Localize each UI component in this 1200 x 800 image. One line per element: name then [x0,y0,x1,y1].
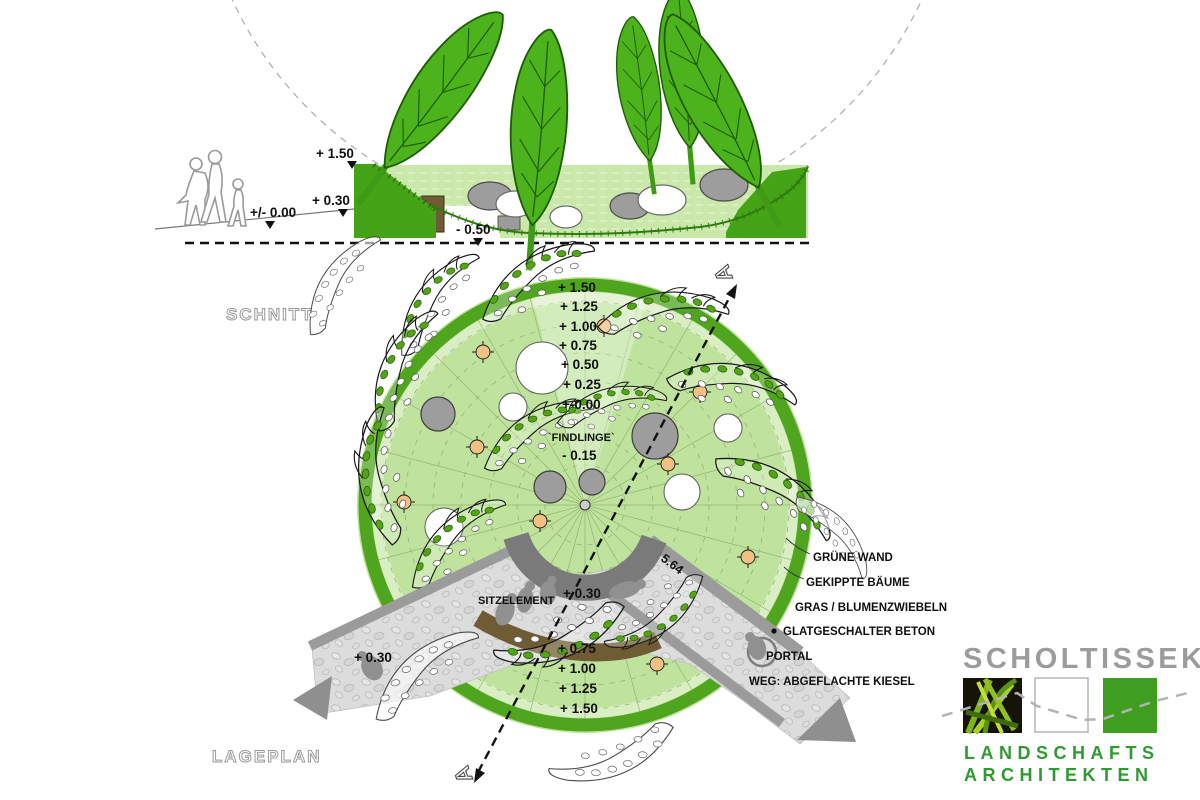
callout-portal: PORTAL [766,651,812,663]
findlinge-label: `FINDLINGE` [548,432,615,444]
landscape-architecture-drawing: + 1.50 + 0.30 +/- 0.00 - 0.50 SCHNITT [0,0,1200,800]
section-drawing: + 1.50 + 0.30 +/- 0.00 - 0.50 SCHNITT [155,0,957,324]
logo-firm-name: SCHOLTISSEK [963,643,1200,675]
elev-top-125: + 1.25 [560,299,598,314]
plan-title: LAGEPLAN [212,747,322,766]
path-level-center: + 0.30 [563,586,601,601]
level-030-label: + 0.30 [312,193,350,208]
elev-top-025: + 0.25 [563,377,601,392]
level-150-label: + 1.50 [316,146,354,161]
callout-gruene-wand: GRÜNE WAND [813,551,893,564]
elev-top-000: +-0.00 [562,397,601,412]
elev-top-100: + 1.00 [559,319,597,334]
findlinge-level: - 0.15 [562,448,597,463]
logo-grass-square [963,678,1022,733]
logo-block: SCHOLTISSEK LANDSCHAFTS ARCHITEKTEN [942,643,1200,785]
path-level-left: + 0.30 [354,650,392,665]
section-title: SCHNITT [226,305,314,324]
section-marker-top: A [709,262,738,286]
walking-people [178,151,246,227]
seat-label: SITZELEMENT [478,595,555,607]
elev-bot-100: + 1.00 [558,661,596,676]
section-marker-bottom: A [449,763,478,787]
elev-bot-075: + 0.75 [558,641,596,656]
logo-sub2: ARCHITEKTEN [964,765,1154,785]
elev-top-150: + 1.50 [558,280,596,295]
elev-top-050: + 0.50 [561,357,599,372]
circle-center-point [580,500,590,510]
portal-triangle-left [293,676,332,720]
elev-bot-150: + 1.50 [560,701,598,716]
elev-bot-125: + 1.25 [559,681,597,696]
callout-gras-blumenzwiebeln: GRAS / BLUMENZWIEBELN [795,602,947,614]
site-plan: A A + 1.50 + 1.25 + 1.00 + 0.75 + 0.50 +… [212,232,947,789]
logo-green-square [1103,678,1157,733]
callout-gekippte-baeume: GEKIPPTE BÄUME [806,576,910,589]
logo-sub1: LANDSCHAFTS [964,743,1160,763]
callout-weg-kiesel: WEG: ABGEFLACHTE KIESEL [749,676,915,688]
callout-glatgeschalter-beton: GLATGESCHALTER BETON [783,626,935,638]
drawing-canvas: + 1.50 + 0.30 +/- 0.00 - 0.50 SCHNITT [0,0,1200,800]
level-m050-label: - 0.50 [456,222,491,237]
elev-top-075: + 0.75 [559,338,597,353]
level-000-label: +/- 0.00 [250,205,296,220]
logo-white-square [1035,678,1088,732]
